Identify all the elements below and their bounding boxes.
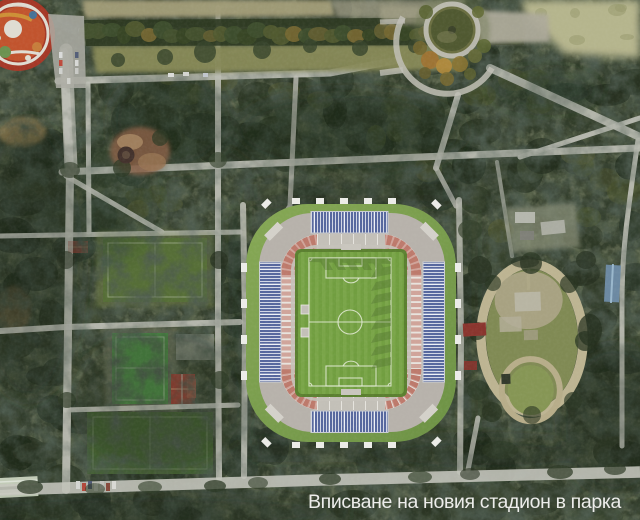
svg-text:Вписване на новия стадион в па: Вписване на новия стадион в парка (308, 491, 621, 513)
